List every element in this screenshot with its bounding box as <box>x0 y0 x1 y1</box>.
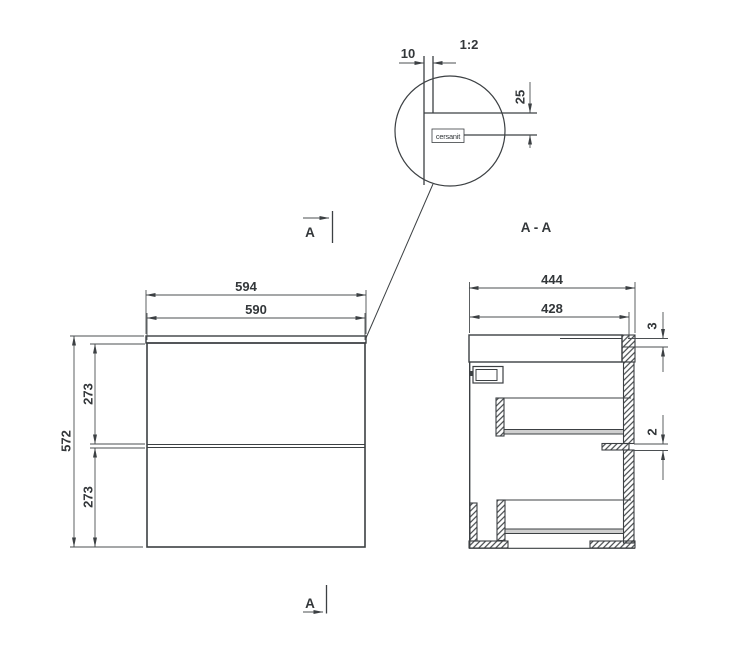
dim-label-444: 444 <box>541 272 563 287</box>
dim-label-590: 590 <box>245 302 267 317</box>
section-gap-rail <box>602 444 629 451</box>
dim-depth-inner: 428 <box>470 301 629 338</box>
dim-label-594: 594 <box>235 279 257 294</box>
section-worktop-front-edge <box>622 335 635 362</box>
cut-marker-bottom-label: A <box>305 596 315 611</box>
upper-drawer-bottom-panel <box>504 430 624 435</box>
dim-label-2: 2 <box>645 428 660 435</box>
detail-panel-edges <box>424 56 537 185</box>
dim-height-total: 572 <box>59 336 145 547</box>
front-view: 594 590 572 273 273 <box>59 279 367 547</box>
section-bottom-strip-left <box>469 541 508 548</box>
dim-label-572: 572 <box>59 430 74 452</box>
brand-label: cersanit <box>436 132 460 141</box>
dim-lower-drawer-height: 273 <box>81 448 146 547</box>
dim-upper-drawer-height: 273 <box>81 344 146 444</box>
dim-front-thickness: 25 <box>513 82 531 148</box>
dim-edge-offset: 10 <box>399 46 456 63</box>
detail-leader-line <box>366 184 433 338</box>
section-lower-drawer-front <box>624 450 635 543</box>
lower-drawer-bottom-panel <box>505 529 624 534</box>
cabinet-technical-drawing: cersanit 10 25 1:2 A A A - A <box>0 0 745 655</box>
front-worktop <box>146 336 366 343</box>
dim-label-25: 25 <box>513 90 528 104</box>
dim-label-10: 10 <box>401 46 415 61</box>
section-lower-drawer-box <box>497 500 631 541</box>
technical-drawing-page: cersanit 10 25 1:2 A A A - A <box>0 0 745 655</box>
section-view: 444 428 3 2 <box>469 272 668 548</box>
section-worktop <box>469 335 622 362</box>
section-upper-drawer-front <box>624 362 635 444</box>
dim-label-3: 3 <box>645 322 660 329</box>
section-back-bottom-rail <box>470 503 477 541</box>
dim-label-428: 428 <box>541 301 563 316</box>
dim-label-273-lower: 273 <box>81 486 96 508</box>
detail-scale-label: 1:2 <box>460 37 479 52</box>
cut-marker-bottom: A <box>303 585 327 614</box>
section-upper-drawer-box <box>496 398 631 436</box>
dim-width-cabinet: 590 <box>147 302 365 340</box>
dim-label-273-upper: 273 <box>81 383 96 405</box>
section-view-title: A - A <box>521 220 552 235</box>
section-bottom-strip-right <box>590 541 635 548</box>
cut-marker-top: A <box>303 211 333 243</box>
detail-circle-view: cersanit 10 25 1:2 <box>366 37 537 338</box>
cut-marker-top-label: A <box>305 225 315 240</box>
section-wall-bracket <box>470 367 504 384</box>
dim-drawer-front-gap: 2 <box>634 415 668 480</box>
